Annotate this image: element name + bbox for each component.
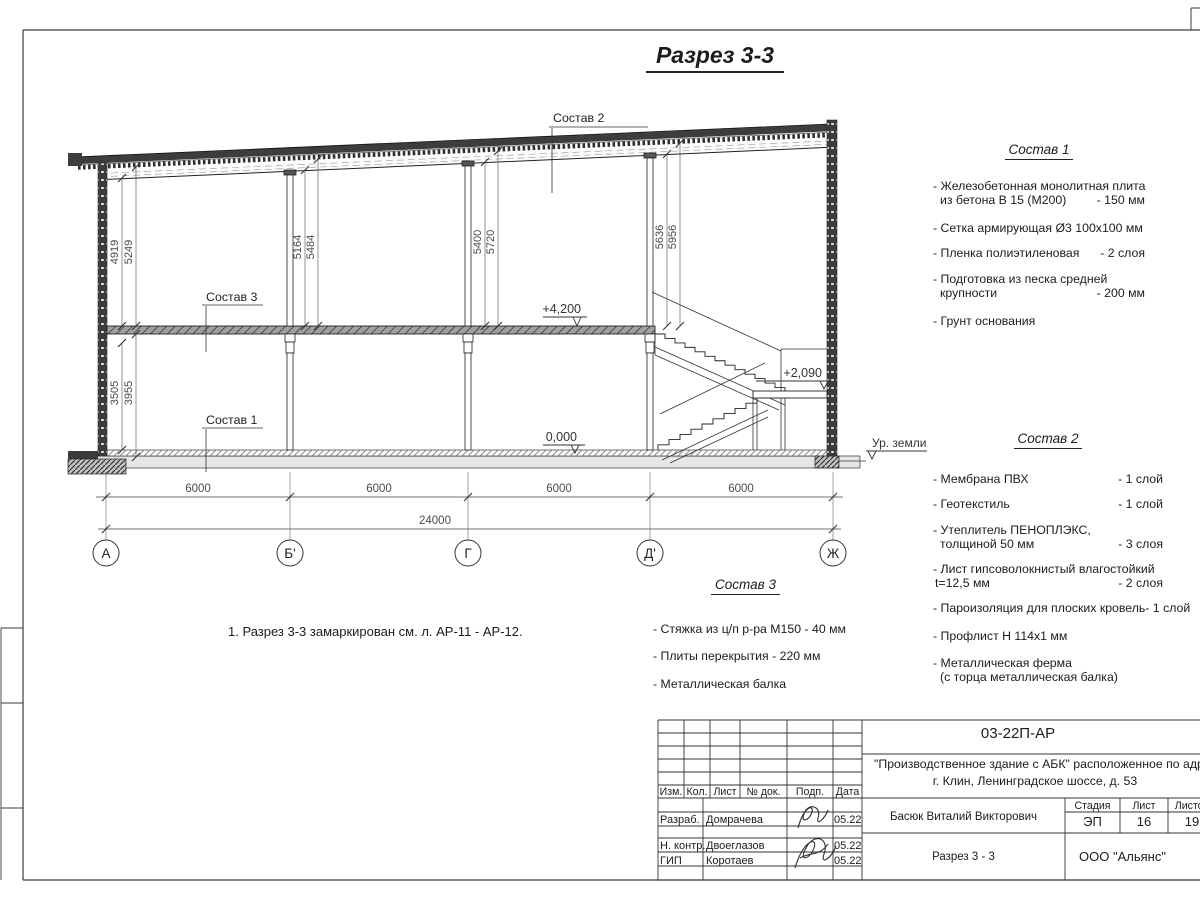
level-marks: +4,200 0,000 +2,090 Ур. земли bbox=[542, 302, 927, 459]
level-floor2: +4,200 bbox=[542, 302, 581, 316]
stage-label: Стадия bbox=[1065, 800, 1120, 812]
composition-list-2: Состав 2 - Мембрана ПВХ- 1 слой - Геотек… bbox=[933, 432, 1163, 684]
date-developer: 05.22 bbox=[834, 814, 862, 826]
date-ncontrol: 05.22 bbox=[834, 840, 862, 852]
column-axis-d bbox=[644, 153, 656, 450]
ground-slab bbox=[68, 450, 866, 474]
date-gip: 05.22 bbox=[834, 855, 862, 867]
col-header-podp: Подп. bbox=[787, 786, 833, 798]
left-wall bbox=[98, 163, 107, 456]
axis-g: Г bbox=[464, 546, 472, 561]
list-item: - Стяжка из ц/п р-ра М150 - 40 мм bbox=[653, 622, 838, 636]
composition-1-title: Состав 1 bbox=[933, 143, 1145, 157]
col-header-kol: Кол. bbox=[684, 786, 710, 798]
signature-checker bbox=[795, 839, 836, 868]
dim-b-outer: 5484 bbox=[305, 235, 317, 259]
span-dim-4: 6000 bbox=[728, 483, 754, 495]
sheets-value: 19 bbox=[1168, 816, 1200, 828]
callout-sostav2: Состав 2 bbox=[553, 111, 604, 125]
list-item: толщиной 50 мм- 3 слоя bbox=[933, 537, 1163, 551]
upper-flight-steps bbox=[655, 334, 785, 392]
list-item: - Геотекстиль- 1 слой bbox=[933, 497, 1163, 511]
list-item: из бетона В 15 (М200)- 150 мм bbox=[933, 193, 1145, 207]
columns bbox=[284, 153, 656, 450]
dim-a-inner: 4919 bbox=[109, 240, 121, 264]
dim-d-inner: 5636 bbox=[654, 225, 666, 249]
list-item: - Утеплитель ПЕНОПЛЭКС, bbox=[933, 523, 1163, 537]
approver-name: Басюк Виталий Викторович bbox=[862, 811, 1065, 823]
column-axis-b bbox=[284, 170, 296, 450]
name-ncontrol: Двоеглазов bbox=[706, 840, 764, 852]
role-developer: Разраб. bbox=[660, 814, 700, 826]
vertical-dimensions bbox=[118, 139, 684, 461]
dim-lower-outer: 3955 bbox=[123, 381, 135, 405]
list-item: крупности- 200 мм bbox=[933, 286, 1145, 300]
col-header-ndok: № док. bbox=[740, 786, 787, 798]
horizontal-dimensions: 6000 6000 6000 6000 24000 bbox=[96, 472, 843, 540]
project-name-line1: "Производственное здание с АБК" располож… bbox=[874, 758, 1200, 770]
list-item: - Мембрана ПВХ- 1 слой bbox=[933, 472, 1163, 486]
axis-b: Б' bbox=[284, 546, 295, 561]
list-item: - Профлист Н 114х1 мм bbox=[933, 629, 1163, 643]
role-gip: ГИП bbox=[660, 855, 682, 867]
sheet-value: 16 bbox=[1120, 816, 1168, 828]
signatures bbox=[795, 807, 836, 868]
list-item: - Пленка полиэтиленовая- 2 слоя bbox=[933, 246, 1145, 260]
role-ncontrol: Н. контр. bbox=[660, 840, 705, 852]
dim-lower-inner: 3505 bbox=[109, 381, 121, 405]
list-item: - Железобетонная монолитная плита bbox=[933, 179, 1145, 193]
sheets-label: Листов bbox=[1168, 800, 1200, 812]
column-axis-g bbox=[462, 161, 474, 450]
dim-g-inner: 5400 bbox=[472, 230, 484, 254]
level-floor1: 0,000 bbox=[546, 430, 577, 444]
list-item: - Сетка армирующая Ø3 100х100 мм bbox=[933, 221, 1145, 235]
right-wall bbox=[827, 120, 837, 456]
list-item: t=12,5 мм- 2 слоя bbox=[933, 576, 1163, 590]
name-gip: Коротаев bbox=[706, 855, 754, 867]
upper-railing bbox=[652, 292, 781, 351]
list-item: - Металлическая балка bbox=[653, 677, 838, 691]
total-dim: 24000 bbox=[419, 515, 451, 527]
span-dim-2: 6000 bbox=[366, 483, 392, 495]
project-name-line2: г. Клин, Ленинградское шоссе, д. 53 bbox=[870, 775, 1200, 787]
span-dim-1: 6000 bbox=[185, 483, 211, 495]
list-item: - Грунт основания bbox=[933, 314, 1145, 328]
span-dim-3: 6000 bbox=[546, 483, 572, 495]
list-item: - Металлическая ферма bbox=[933, 656, 1163, 670]
stage-value: ЭП bbox=[1065, 816, 1120, 828]
composition-3-title: Состав 3 bbox=[653, 578, 838, 592]
list-item: (с торца металлическая балка) bbox=[933, 670, 1163, 684]
dim-a-outer: 5249 bbox=[123, 240, 135, 264]
axis-a: А bbox=[101, 546, 110, 561]
list-item: - Плиты перекрытия - 220 мм bbox=[653, 649, 838, 663]
level-landing: +2,090 bbox=[783, 366, 822, 380]
dim-g-outer: 5720 bbox=[485, 230, 497, 254]
axis-zh: Ж bbox=[827, 546, 840, 561]
drawing-note: 1. Разрез 3-3 замаркирован см. л. АР-11 … bbox=[228, 624, 523, 639]
composition-list-3: Состав 3 - Стяжка из ц/п р-ра М150 - 40 … bbox=[653, 578, 838, 691]
drawing-name: Разрез 3 - 3 bbox=[862, 851, 1065, 863]
lower-flight-steps bbox=[658, 398, 768, 450]
callout-sostav1: Состав 1 bbox=[206, 413, 257, 427]
ground-level-label: Ур. земли bbox=[872, 436, 926, 450]
sheet-label: Лист bbox=[1120, 800, 1168, 812]
name-developer: Домрачева bbox=[706, 814, 763, 826]
page-title: Разрез 3-3 bbox=[590, 42, 840, 69]
composition-2-title: Состав 2 bbox=[933, 432, 1163, 446]
company-name: ООО "Альянс" bbox=[1065, 851, 1180, 863]
landing-slab bbox=[753, 391, 827, 398]
col-header-data: Дата bbox=[833, 786, 862, 798]
lower-railing bbox=[660, 363, 765, 414]
col-header-izm: Изм. bbox=[658, 786, 684, 798]
callout-sostav3: Состав 3 bbox=[206, 290, 257, 304]
list-item: - Подготовка из песка средней bbox=[933, 272, 1145, 286]
axis-d: Д' bbox=[644, 546, 656, 561]
upper-stringer bbox=[655, 347, 785, 410]
list-item: - Лист гипсоволокнистый влагостойкий bbox=[933, 562, 1163, 576]
list-item: - Пароизоляция для плоских кровель- 1 сл… bbox=[933, 601, 1163, 615]
roof-assembly bbox=[68, 124, 830, 180]
dim-b-inner: 5164 bbox=[292, 235, 304, 259]
col-header-list: Лист bbox=[710, 786, 740, 798]
signature-developer bbox=[798, 807, 828, 828]
vertical-dimension-labels: 4919 5249 5164 5484 5400 5720 5636 5956 … bbox=[109, 225, 679, 405]
composition-list-1: Состав 1 - Железобетонная монолитная пли… bbox=[933, 143, 1145, 329]
dim-d-outer: 5956 bbox=[667, 225, 679, 249]
document-code: 03-22П-АР bbox=[862, 728, 1174, 740]
axis-bubbles: А Б' Г Д' Ж bbox=[93, 540, 846, 566]
floor2-slab bbox=[107, 326, 655, 334]
drawing-sheet: 4919 5249 5164 5484 5400 5720 5636 5956 … bbox=[0, 0, 1200, 900]
